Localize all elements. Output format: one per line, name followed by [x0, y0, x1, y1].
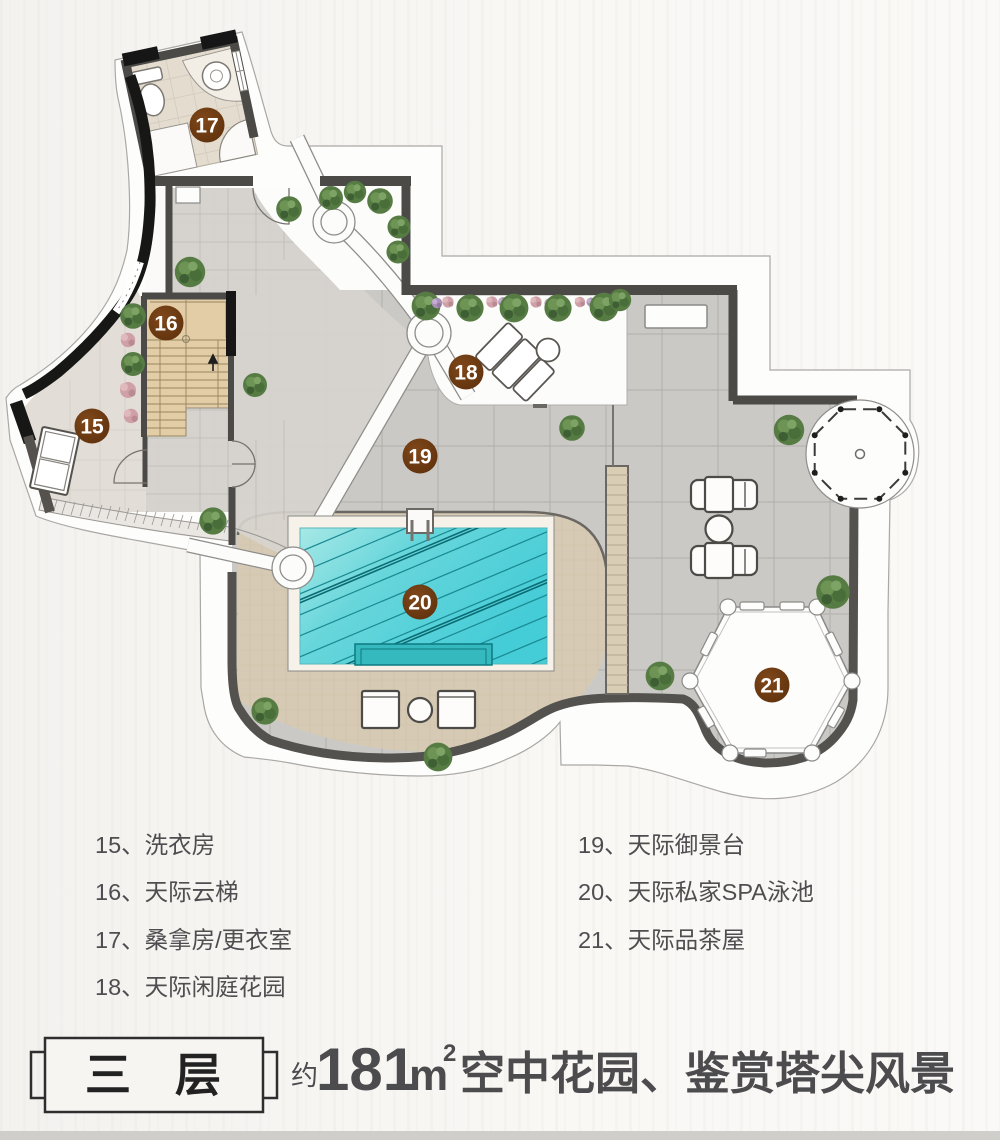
svg-text:18、天际闲庭花园: 18、天际闲庭花园 [95, 974, 286, 1000]
svg-text:20、天际私家SPA泳池: 20、天际私家SPA泳池 [578, 879, 814, 905]
svg-text:三: 三 [85, 1049, 131, 1101]
svg-text:17: 17 [195, 115, 218, 138]
svg-text:19: 19 [408, 446, 431, 469]
svg-text:约: 约 [291, 1061, 318, 1091]
svg-text:空中花园、鉴赏塔尖风景: 空中花园、鉴赏塔尖风景 [460, 1048, 955, 1099]
svg-text:16、天际云梯: 16、天际云梯 [95, 879, 239, 905]
svg-text:21、天际品茶屋: 21、天际品茶屋 [578, 927, 745, 953]
svg-text:19、天际御景台: 19、天际御景台 [578, 832, 745, 858]
svg-text:层: 层 [175, 1049, 221, 1101]
svg-text:21: 21 [760, 675, 784, 698]
svg-text:15、洗衣房: 15、洗衣房 [95, 832, 215, 858]
svg-text:181: 181 [316, 1036, 416, 1103]
svg-text:15: 15 [80, 416, 104, 439]
svg-text:20: 20 [408, 592, 431, 615]
svg-text:16: 16 [154, 313, 177, 336]
svg-text:18: 18 [454, 362, 478, 385]
svg-text:17、桑拿房/更衣室: 17、桑拿房/更衣室 [95, 927, 292, 953]
svg-text:2: 2 [443, 1040, 456, 1067]
